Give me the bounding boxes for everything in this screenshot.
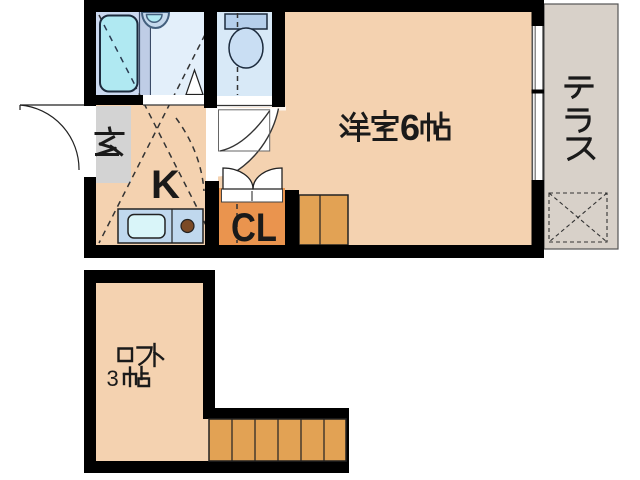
svg-text:K: K <box>151 163 180 207</box>
svg-text:3: 3 <box>107 366 119 391</box>
svg-text:6: 6 <box>400 107 420 148</box>
svg-text:CL: CL <box>231 206 277 250</box>
